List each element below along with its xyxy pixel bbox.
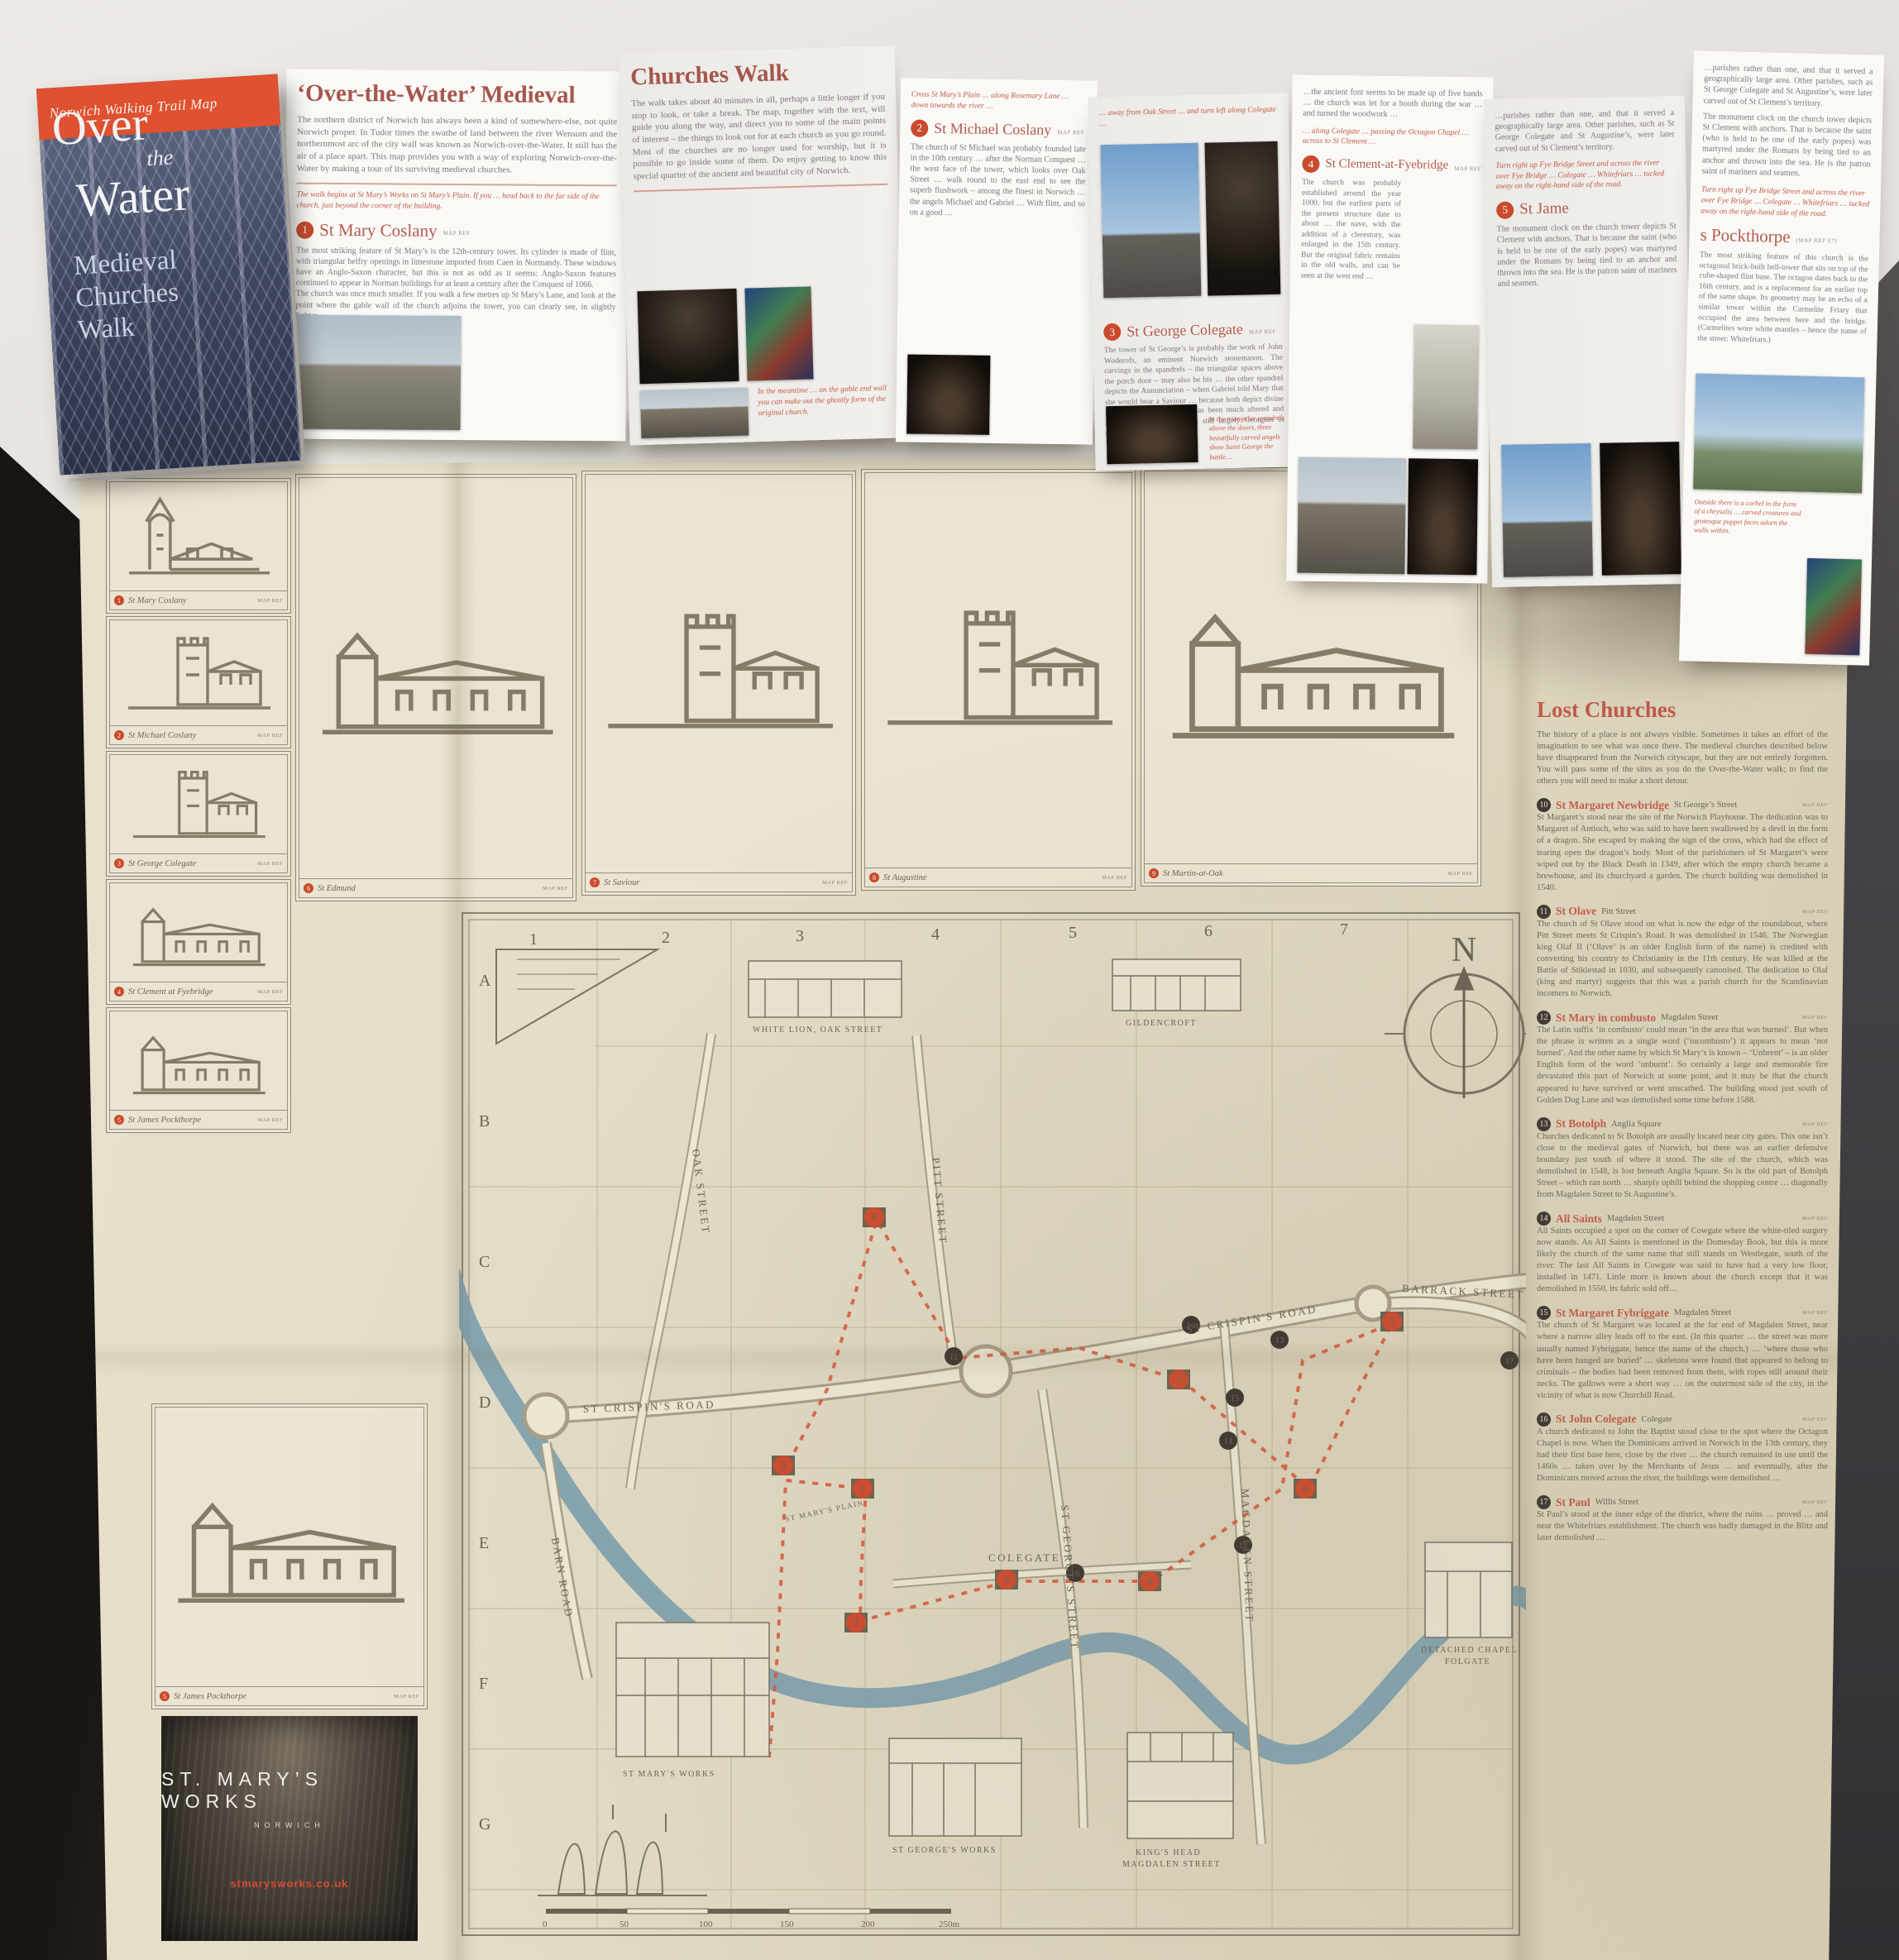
entry-body: The church of St Margaret was located at… xyxy=(1537,1320,1828,1401)
promo-title: ST. MARY’S WORKS xyxy=(161,1768,418,1813)
entry-location: Colegate xyxy=(1642,1415,1672,1424)
photo-saint-statue xyxy=(1413,324,1479,449)
vignette-caption: KING'S HEAD xyxy=(1136,1848,1201,1857)
photo-carved-porch xyxy=(906,355,990,435)
street-label: OAK STREET xyxy=(690,1149,713,1236)
svg-text:14: 14 xyxy=(1224,1437,1234,1446)
continuation-paragraph: The monument clock on the church tower d… xyxy=(1497,221,1677,289)
red-number-icon: 7 xyxy=(590,877,600,887)
entry-body: Churches dedicated to St Botolph are usu… xyxy=(1537,1131,1828,1201)
section-heading-part1: St Jame xyxy=(1519,200,1569,219)
grid-col: 6 xyxy=(1204,922,1213,940)
map-ref: MAP REF xyxy=(1057,129,1084,136)
lost-churches-column: Lost Churches The history of a place is … xyxy=(1537,697,1828,1938)
promo-subtitle: NORWICH xyxy=(254,1821,325,1829)
photo-stained-glass-window xyxy=(744,286,813,380)
red-number-icon: 2 xyxy=(911,119,928,136)
street-label: COLEGATE xyxy=(988,1551,1060,1564)
map-ref: MAP REF xyxy=(257,598,283,604)
svg-text:4: 4 xyxy=(1147,1575,1153,1587)
brochure-panel-7: …parishes rather than one, and that it s… xyxy=(1679,50,1884,665)
lost-church-entry: 13St BotolphAnglia SquareMAP REF Churche… xyxy=(1537,1117,1828,1201)
continuation-paragraph: …parishes rather than one, and that it s… xyxy=(1495,108,1675,155)
grid-col: 1 xyxy=(529,930,538,949)
entry-body: The church of St Olave stood on what is … xyxy=(1537,919,1828,1000)
red-number-icon: 5 xyxy=(160,1691,170,1701)
svg-text:9: 9 xyxy=(781,1459,787,1471)
section-body: The church of St Michael was probably fo… xyxy=(910,141,1086,220)
red-number-icon: 3 xyxy=(1103,323,1121,341)
vignette-caption: ST GEORGE'S WORKS xyxy=(892,1846,997,1855)
map-ref: MAP REF xyxy=(1447,871,1473,877)
map-ref: MAP REF xyxy=(257,733,283,739)
map-ref: MAP REF xyxy=(257,989,283,995)
section-body: The most striking feature of St Mary’s i… xyxy=(295,245,616,323)
engraving-frame-st-saviour: 7St SaviourMAP REF xyxy=(581,471,856,896)
brochure-panel-4: … away from Oak Street … and turn left a… xyxy=(1088,93,1295,471)
entry-location: Magdalen Street xyxy=(1674,1308,1731,1317)
photo-carved-ceiling xyxy=(637,289,739,384)
grid-row: G xyxy=(479,1815,490,1833)
brochure-panel-6: …parishes rather than one, and that it s… xyxy=(1484,96,1693,587)
map-ref: MAP REF xyxy=(257,1117,283,1123)
map-ref: MAP REF xyxy=(1802,802,1828,808)
red-number-icon: 4 xyxy=(114,987,124,997)
dark-number-icon: 10 xyxy=(1537,798,1551,812)
svg-text:6: 6 xyxy=(1303,1482,1308,1494)
route-directions: Cross St Mary’s Plain … along Rosemary L… xyxy=(911,90,1087,114)
engraving-frame-st-augustine: 8St AugustineMAP REF xyxy=(861,469,1136,891)
entry-location: Magdalen Street xyxy=(1607,1214,1664,1223)
vignette-caption: GILDENCROFT xyxy=(1126,1019,1197,1028)
photo-caption: Outside there is a corbel in the form of… xyxy=(1694,497,1802,538)
photo-caption: In the triangular spandrels above the do… xyxy=(1208,413,1287,461)
dark-number-icon: 16 xyxy=(1537,1413,1551,1427)
entry-name: St John Colegate xyxy=(1556,1413,1637,1426)
grid-row: C xyxy=(479,1253,490,1271)
grid-row: A xyxy=(479,972,491,990)
entry-name: St Margaret Newbridge xyxy=(1556,799,1669,812)
vignette-caption: FOLGATE xyxy=(1445,1657,1490,1666)
cover-subtitle: Medieval Churches Walk xyxy=(73,244,182,347)
vignette-caption: MAGDALEN STREET xyxy=(1122,1860,1221,1869)
red-number-icon: 5 xyxy=(1496,201,1514,218)
compass-n: N xyxy=(1452,931,1476,969)
map-ref: MAP REF xyxy=(257,861,283,867)
lost-church-entry: 14All SaintsMagdalen StreetMAP REF All S… xyxy=(1537,1212,1828,1295)
lost-church-entry: 17St PaulWillis StreetMAP REF St Paul’s … xyxy=(1537,1495,1828,1544)
grid-col: 3 xyxy=(796,927,804,945)
map-ref: MAP REF xyxy=(1802,1121,1828,1127)
frame-caption: St Edmund xyxy=(318,884,356,893)
engraving-frame-st-edmund: 6St EdmundMAP REF xyxy=(295,474,576,901)
svg-text:200: 200 xyxy=(861,1919,875,1929)
entry-name: All Saints xyxy=(1556,1212,1602,1226)
dark-number-icon: 12 xyxy=(1537,1011,1551,1025)
red-number-icon: 3 xyxy=(114,858,124,868)
vignette-caption: DETACHED CHAPEL xyxy=(1421,1646,1518,1655)
map-ref: MAP REF xyxy=(1802,1417,1828,1422)
street-label: ST MARY'S PLAIN xyxy=(784,1499,864,1523)
svg-text:3: 3 xyxy=(1004,1573,1010,1585)
engraving-frame-st-james: 5St James PockthorpeMAP REF xyxy=(106,1007,291,1133)
red-number-icon: 9 xyxy=(1149,868,1159,878)
map-ref: MAP REF xyxy=(1454,165,1481,172)
map-ref: MAP REF xyxy=(1802,1310,1828,1316)
photo-church-exterior xyxy=(640,388,749,439)
scale-bar: 0 50 100 150 200 250m xyxy=(543,1909,960,1929)
brochure-panel-1: ‘Over-the-Water’ Medieval The northern d… xyxy=(284,69,628,442)
cover-title-over: Over xyxy=(50,100,149,151)
route-directions: Turn right up Fye Bridge Street and acro… xyxy=(1700,184,1870,220)
frame-caption: St Clement at Fyebridge xyxy=(128,987,213,997)
dark-number-icon: 11 xyxy=(1537,905,1551,919)
section-body: The church was probably established arou… xyxy=(1301,178,1402,283)
svg-text:11: 11 xyxy=(949,1352,959,1362)
entry-location: Pitt Street xyxy=(1601,907,1636,916)
divider xyxy=(634,184,887,193)
svg-text:150: 150 xyxy=(780,1919,794,1929)
svg-text:8: 8 xyxy=(872,1211,878,1223)
svg-text:100: 100 xyxy=(699,1919,713,1929)
red-number-icon: 4 xyxy=(1302,155,1319,173)
entry-name: St Margaret Fybriggate xyxy=(1556,1307,1669,1320)
red-number-icon: 6 xyxy=(304,883,313,893)
photo-interior-arches xyxy=(1204,141,1280,296)
grid-col: 7 xyxy=(1340,920,1348,939)
entry-location: Anglia Square xyxy=(1611,1120,1661,1129)
folded-cover-leaflet: Norwich Walking Trail Map Over the Water… xyxy=(36,74,301,476)
intro-paragraph-cont: The walk takes about 40 minutes in all, … xyxy=(631,91,887,182)
frame-caption: St Augustine xyxy=(883,873,927,882)
map-ref: MAP REF xyxy=(1802,1499,1828,1505)
photo-round-tower-church xyxy=(295,315,462,430)
svg-text:0: 0 xyxy=(543,1919,548,1929)
photo-flint-church xyxy=(1297,457,1406,575)
entry-body: St Paul’s stood at the inner edge of the… xyxy=(1537,1509,1828,1544)
entry-body: The Latin suffix ‘in combusto’ could mea… xyxy=(1537,1025,1828,1106)
section-heading-part2: s Pockthorpe xyxy=(1700,225,1791,248)
brochure-heading-part1: ‘Over-the-Water’ Medieval xyxy=(297,81,617,108)
map-ref: MAP REF xyxy=(443,230,471,237)
lost-church-entry: 15St Margaret FybriggateMagdalen StreetM… xyxy=(1537,1306,1828,1401)
dark-number-icon: 17 xyxy=(1537,1495,1551,1509)
engraving-frame-st-clement: 4St Clement at FyebridgeMAP REF xyxy=(106,879,291,1005)
photo-cloister-arch xyxy=(1600,442,1681,576)
red-number-icon: 1 xyxy=(296,221,313,238)
map-ref: MAP REF xyxy=(394,1694,419,1699)
map-ref: MAP REF xyxy=(1102,875,1127,881)
entry-name: St Botolph xyxy=(1556,1117,1606,1131)
frame-caption: St Martin-at-Oak xyxy=(1163,869,1223,878)
map-ref: MAP REF xyxy=(1802,1216,1828,1221)
section-body: The most striking feature of this church… xyxy=(1697,251,1868,348)
svg-text:15: 15 xyxy=(1231,1394,1241,1403)
photo-gateway xyxy=(1407,458,1478,575)
svg-text:13: 13 xyxy=(1275,1336,1285,1346)
entry-name: St Paul xyxy=(1556,1496,1590,1509)
vignette-caption: ST MARY'S WORKS xyxy=(623,1770,715,1779)
brochure-panel-5: …the ancient font seems to be made up of… xyxy=(1286,75,1493,584)
photo-church-tower xyxy=(1101,143,1202,298)
continuation-paragraph: The monument clock on the church tower d… xyxy=(1701,111,1872,180)
grid-col: 5 xyxy=(1069,924,1077,942)
entry-name: St Mary in combusto xyxy=(1556,1011,1656,1025)
engraving-frame-st-michael-coslany: 2St Michael CoslanyMAP REF xyxy=(106,616,291,748)
frame-caption: St Mary Coslany xyxy=(128,596,187,605)
grid-row: F xyxy=(479,1675,488,1693)
route-directions: … along Colegate … passing the Octagon C… xyxy=(1303,126,1482,149)
red-number-icon: 5 xyxy=(114,1115,124,1125)
engraving-frame-st-mary-coslany: 1St Mary CoslanyMAP REF xyxy=(106,478,291,614)
red-number-icon: 1 xyxy=(114,595,124,605)
grid-row: D xyxy=(479,1394,490,1412)
photo-of-map-leaflet: 1St Mary CoslanyMAP REF 2St Michael Cosl… xyxy=(0,0,1899,1960)
feature-engraving-st-james-pockthorpe: 5St James PockthorpeMAP REF xyxy=(151,1403,428,1709)
walking-map: 1 2 3 4 5 6 7 A B C D E F G xyxy=(459,910,1526,1939)
entry-body: All Saints occupied a spot on the corner… xyxy=(1537,1226,1828,1295)
entry-location: St George’s Street xyxy=(1674,801,1737,810)
map-ref: MAP REF xyxy=(543,886,568,892)
engraving-frame-st-george-colegate: 3St George ColegateMAP REF xyxy=(106,751,291,877)
svg-text:5: 5 xyxy=(1390,1315,1395,1327)
dark-number-icon: 13 xyxy=(1537,1117,1551,1131)
walk-start-note: The walk begins at St Mary’s Works on St… xyxy=(296,190,616,213)
photo-church-on-hill xyxy=(1693,373,1864,493)
divider xyxy=(297,183,617,187)
section-heading: St Clement-at-Fyebridge xyxy=(1325,157,1448,173)
brochure-panel-3: Cross St Mary’s Plain … along Rosemary L… xyxy=(896,78,1098,444)
intro-paragraph: The northern district of Norwich has alw… xyxy=(297,114,617,176)
entry-body: St Margaret’s stood near the site of the… xyxy=(1537,812,1828,893)
grid-row: B xyxy=(479,1112,490,1131)
photo-caption: In the meantime … on the gable end wall … xyxy=(758,384,892,419)
route-directions: Turn right up Fye Bridge Street and acro… xyxy=(1495,158,1676,193)
svg-text:2: 2 xyxy=(854,1616,859,1628)
lost-church-entry: 12St Mary in combustoMagdalen StreetMAP … xyxy=(1537,1011,1828,1106)
photo-arch-doorway xyxy=(1106,404,1198,464)
photo-church-tower xyxy=(1501,443,1593,577)
svg-text:50: 50 xyxy=(619,1919,629,1929)
frame-caption: St Michael Coslany xyxy=(128,731,196,740)
continuation-paragraph: …the ancient font seems to be made up of… xyxy=(1303,87,1482,122)
svg-text:17: 17 xyxy=(1505,1356,1515,1366)
svg-text:1: 1 xyxy=(860,1482,866,1494)
compass-rose-icon: N xyxy=(1385,931,1526,1098)
procession-figures xyxy=(538,1805,707,1895)
frame-caption: St James Pockthorpe xyxy=(128,1116,201,1125)
promo-url: stmarysworks.co.uk xyxy=(230,1877,348,1890)
continuation-paragraph: …parishes rather than one, and that it s… xyxy=(1703,63,1873,111)
map-ref: MAP REF xyxy=(1802,909,1828,915)
pediment-decoration xyxy=(496,949,658,1044)
brochure-panel-2: Churches Walk The walk takes about 40 mi… xyxy=(619,45,905,445)
entry-location: Magdalen Street xyxy=(1661,1013,1718,1022)
red-number-icon: 8 xyxy=(869,872,879,882)
grid-col: 2 xyxy=(662,929,670,947)
frame-caption: St Saviour xyxy=(604,878,639,887)
st-marys-works-promo: ST. MARY’S WORKS NORWICH stmarysworks.co… xyxy=(161,1716,418,1941)
route-directions: … away from Oak Street … and turn left a… xyxy=(1099,105,1278,130)
section-heading: St Michael Coslany xyxy=(934,120,1051,139)
entry-location: Willis Street xyxy=(1595,1498,1638,1507)
section-heading: St Mary Coslany xyxy=(319,219,438,241)
map-ref: MAP REF xyxy=(822,880,848,886)
frame-caption: St James Pockthorpe xyxy=(174,1692,246,1701)
map-ref: MAP REF xyxy=(1249,327,1276,335)
grid-row: E xyxy=(479,1534,489,1552)
grid-col: 4 xyxy=(931,925,940,944)
section-heading: St George Colegate xyxy=(1126,321,1243,341)
vignette-caption: WHITE LION, OAK STREET xyxy=(753,1025,883,1035)
map-ref: (MAP REF E7) xyxy=(1796,237,1837,244)
entry-body: A church dedicated to John the Baptist s… xyxy=(1537,1427,1828,1484)
entry-name: St Olave xyxy=(1556,905,1596,918)
lost-church-entry: 10St Margaret NewbridgeSt George’s Stree… xyxy=(1537,798,1828,893)
photo-stained-glass xyxy=(1805,558,1862,656)
map-ref: MAP REF xyxy=(1802,1015,1828,1021)
frame-caption: St George Colegate xyxy=(128,859,196,868)
lost-church-entry: 11St OlavePitt StreetMAP REF The church … xyxy=(1537,905,1828,1000)
lost-churches-intro: The history of a place is not always vis… xyxy=(1537,729,1828,787)
brochure-heading-part2: Churches Walk xyxy=(630,58,885,90)
red-number-icon: 2 xyxy=(114,730,124,740)
lost-church-entry: 16St John ColegateColegateMAP REF A chur… xyxy=(1537,1413,1828,1484)
dark-number-icon: 15 xyxy=(1537,1306,1551,1320)
svg-text:250m: 250m xyxy=(939,1919,960,1929)
cover-title-water: Water xyxy=(74,165,191,227)
dark-number-icon: 14 xyxy=(1537,1212,1551,1226)
svg-text:7: 7 xyxy=(1176,1373,1182,1385)
